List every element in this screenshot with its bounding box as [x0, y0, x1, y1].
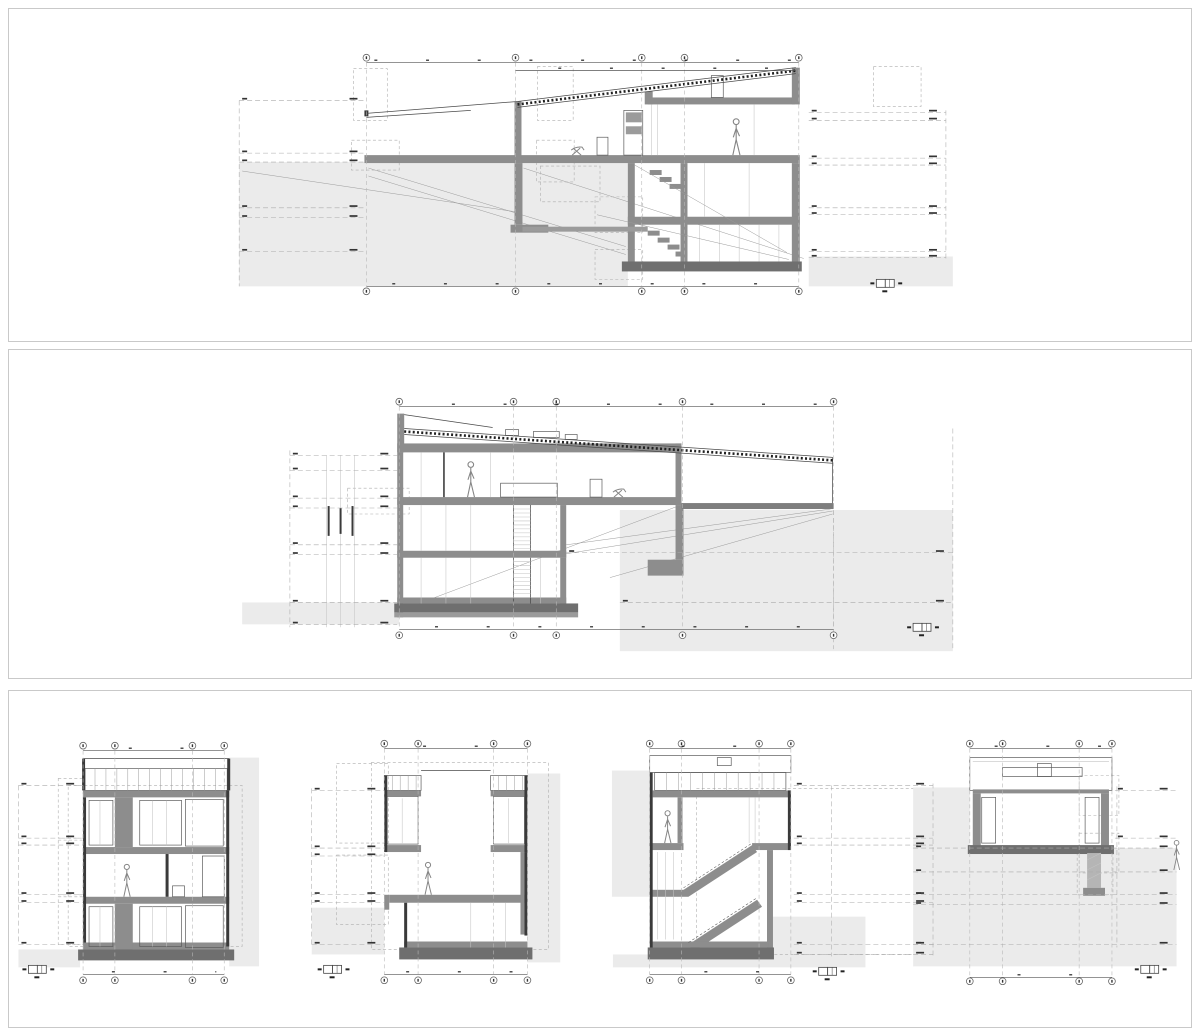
level-marker: [916, 942, 921, 944]
panel-longitudinal-section-2: [8, 349, 1192, 679]
grid-bubble-label: [790, 742, 791, 745]
level-marker: [812, 118, 817, 120]
level-label: [929, 162, 937, 164]
grid-bubble-label: [556, 400, 557, 403]
level-label: [66, 842, 74, 844]
level-marker: [916, 902, 921, 904]
level-marker: [293, 552, 298, 554]
level-label: [936, 550, 944, 552]
grid-bubble-label: [649, 742, 650, 745]
level-label: [1160, 788, 1168, 790]
grid-bubble-label: [649, 979, 650, 982]
scale-bar: [813, 967, 845, 980]
level-marker: [797, 952, 802, 954]
level-label: [380, 542, 388, 544]
level-label: [929, 249, 937, 251]
grid-bubble-label: [681, 742, 682, 745]
person-figure: [1174, 840, 1180, 869]
level-marker: [812, 255, 817, 257]
level-label: [1160, 892, 1168, 894]
level-marker: [812, 156, 817, 158]
long-section-1-drawing: [9, 9, 1191, 341]
level-marker: [812, 249, 817, 251]
level-label: [367, 892, 375, 894]
level-marker: [797, 783, 802, 785]
level-label: [929, 118, 937, 120]
level-label: [66, 836, 74, 838]
level-marker: [315, 900, 320, 902]
level-marker: [21, 783, 26, 785]
level-marker: [812, 110, 817, 112]
grid-bubble-label: [384, 742, 385, 745]
level-label: [936, 600, 944, 602]
grid-bubble-label: [684, 290, 685, 293]
grid-bubble-label: [366, 290, 367, 293]
person-figure: [733, 119, 740, 155]
level-marker: [1118, 788, 1123, 790]
grid-bubble-label: [114, 979, 115, 982]
grid-bubble-label: [417, 979, 418, 982]
grid-bubble-label: [790, 979, 791, 982]
cross-section-c: [18, 758, 259, 968]
person-figure: [468, 462, 475, 497]
grid-bubble-label: [114, 744, 115, 747]
cross-section-f: [913, 758, 1176, 967]
level-label: [380, 552, 388, 554]
level-marker: [797, 842, 802, 844]
level-label: [929, 205, 937, 207]
grid-bubble-label: [513, 400, 514, 403]
level-marker: [812, 205, 817, 207]
grid-bubble-label: [833, 634, 834, 637]
level-label: [916, 842, 924, 844]
level-marker: [21, 900, 26, 902]
person-figure: [124, 864, 130, 896]
grid-bubble-label: [527, 979, 528, 982]
level-marker: [293, 496, 298, 498]
level-label: [380, 505, 388, 507]
level-label: [66, 900, 74, 902]
level-marker: [812, 162, 817, 164]
level-label: [350, 151, 358, 153]
grid-bubble-label: [493, 742, 494, 745]
panel-longitudinal-section-1: [8, 8, 1192, 342]
panel-cross-sections: [8, 690, 1192, 1028]
level-label: [367, 853, 375, 855]
level-label: [1160, 869, 1168, 871]
level-marker: [21, 836, 26, 838]
level-marker: [242, 151, 247, 153]
grid-bubble-label: [1002, 742, 1003, 745]
level-marker: [916, 845, 921, 847]
level-marker: [293, 542, 298, 544]
lounge-chair: [571, 147, 584, 155]
grid-bubble-label: [681, 979, 682, 982]
level-label: [367, 788, 375, 790]
level-label: [929, 212, 937, 214]
level-marker: [242, 205, 247, 207]
level-label: [1160, 845, 1168, 847]
long-section-2-drawing: [9, 350, 1191, 678]
level-label: [929, 255, 937, 257]
level-label: [66, 783, 74, 785]
level-marker: [293, 505, 298, 507]
level-marker: [21, 842, 26, 844]
level-marker: [916, 892, 921, 894]
grid-bubble-label: [224, 979, 225, 982]
grid-bubble-label: [515, 56, 516, 59]
level-label: [916, 783, 924, 785]
grid-bubble-label: [798, 56, 799, 59]
level-label: [367, 900, 375, 902]
level-label: [350, 159, 358, 161]
level-label: [367, 845, 375, 847]
grid-bubble-label: [417, 742, 418, 745]
grid-bubble-label: [833, 400, 834, 403]
level-marker: [242, 98, 247, 100]
grid-bubble-label: [527, 742, 528, 745]
level-marker: [242, 249, 247, 251]
level-label: [350, 249, 358, 251]
grid-bubble-label: [798, 290, 799, 293]
level-marker: [293, 600, 298, 602]
grid-bubble-label: [969, 980, 970, 983]
level-label: [929, 110, 937, 112]
level-label: [1160, 942, 1168, 944]
level-label: [929, 156, 937, 158]
ground: [239, 162, 953, 286]
level-marker: [315, 942, 320, 944]
level-marker: [315, 845, 320, 847]
grid-bubble-label: [493, 979, 494, 982]
grid-bubble-label: [399, 400, 400, 403]
grid-bubble-label: [682, 400, 683, 403]
level-label: [367, 942, 375, 944]
level-label: [380, 496, 388, 498]
grid-bubble-label: [758, 742, 759, 745]
level-label: [380, 622, 388, 624]
grid-bubble-label: [82, 979, 83, 982]
cross-section-d: [312, 763, 561, 963]
level-label: [66, 892, 74, 894]
grid-bubble-label: [192, 979, 193, 982]
level-marker: [315, 853, 320, 855]
level-marker: [21, 942, 26, 944]
level-marker: [797, 836, 802, 838]
grid-bubble-label: [399, 634, 400, 637]
level-marker: [242, 159, 247, 161]
level-marker: [293, 622, 298, 624]
level-label: [66, 942, 74, 944]
grid-bubble-label: [641, 56, 642, 59]
person-figure: [665, 811, 671, 843]
grid-bubble-label: [641, 290, 642, 293]
level-marker: [812, 212, 817, 214]
level-marker: [242, 215, 247, 217]
grid-bubble-label: [684, 56, 685, 59]
cross-section-e: [612, 756, 933, 968]
level-label: [1160, 902, 1168, 904]
grid-bubble-label: [366, 56, 367, 59]
level-marker: [1118, 836, 1123, 838]
grid-bubble-label: [1078, 742, 1079, 745]
grid-bubble-label: [1002, 980, 1003, 983]
level-label: [350, 205, 358, 207]
grid-bubble-label: [513, 634, 514, 637]
scale-bar: [1135, 965, 1167, 978]
level-marker: [797, 892, 802, 894]
person-figure: [425, 862, 431, 894]
level-marker: [315, 892, 320, 894]
level-label: [916, 952, 924, 954]
level-label: [350, 215, 358, 217]
lounge-chair: [613, 489, 626, 497]
level-marker: [797, 900, 802, 902]
level-label: [1160, 836, 1168, 838]
level-marker: [797, 942, 802, 944]
level-marker: [569, 550, 574, 552]
level-label: [350, 98, 358, 100]
cross-sections-drawing: [9, 691, 1191, 1027]
grid-bubble-label: [556, 634, 557, 637]
level-label: [916, 836, 924, 838]
level-marker: [293, 468, 298, 470]
grid-bubble-label: [82, 744, 83, 747]
grid-bubble-label: [224, 744, 225, 747]
level-marker: [293, 453, 298, 455]
level-label: [380, 600, 388, 602]
grid-bubble-label: [758, 979, 759, 982]
level-label: [916, 900, 924, 902]
level-label: [380, 468, 388, 470]
grid-bubble-label: [1111, 980, 1112, 983]
grid-bubble-label: [1078, 980, 1079, 983]
level-marker: [916, 869, 921, 871]
grid-bubble-label: [515, 290, 516, 293]
level-label: [380, 453, 388, 455]
level-marker: [623, 600, 628, 602]
level-marker: [21, 892, 26, 894]
grid-bubble-label: [384, 979, 385, 982]
scale-bar: [318, 965, 350, 978]
grid-bubble-label: [969, 742, 970, 745]
grid-bubble-label: [1111, 742, 1112, 745]
grid-bubble-label: [192, 744, 193, 747]
drawing-sheet: [0, 0, 1200, 1036]
grid-bubble-label: [682, 634, 683, 637]
level-marker: [315, 788, 320, 790]
